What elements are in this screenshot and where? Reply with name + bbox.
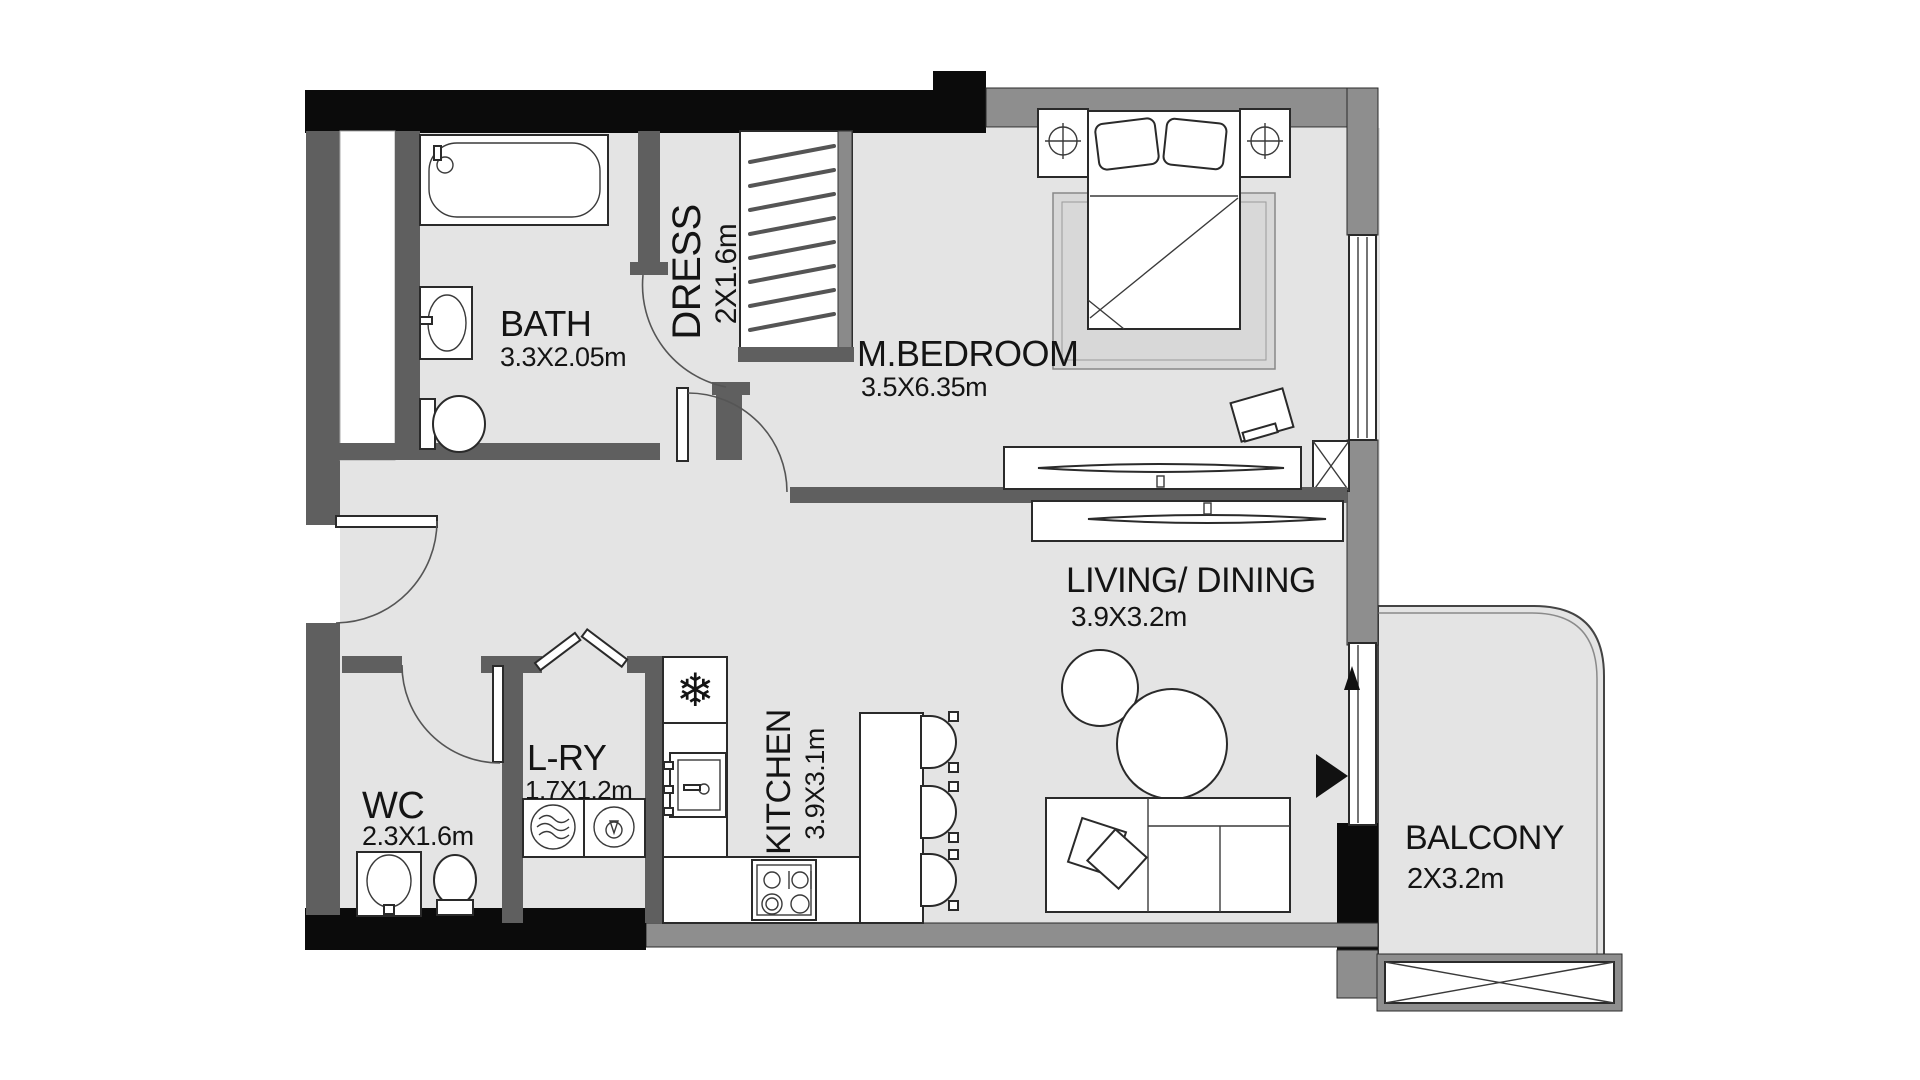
wc-laundry-wall	[502, 656, 523, 923]
bedroom-door-leaf	[677, 388, 688, 461]
label-dress: DRESS 2X1.6m	[665, 204, 743, 339]
bed-pillow	[1163, 118, 1227, 170]
living-tv-icon	[1088, 515, 1326, 523]
balcony-dims: 2X3.2m	[1407, 863, 1504, 895]
bedroom-window	[1349, 235, 1376, 440]
bar-stool-tab	[949, 850, 958, 859]
bottom-wall-gray	[646, 923, 1378, 947]
service-shaft	[340, 131, 395, 460]
bar-stool	[921, 850, 958, 910]
kitchen-sink-knob	[664, 808, 673, 815]
bedroom-tv-icon	[1038, 464, 1284, 472]
bath-name: BATH	[500, 303, 591, 344]
wc-fixtures	[357, 852, 476, 916]
laundry-dims: 1.7X1.2m	[525, 775, 632, 805]
floor-plan-page: ❄	[0, 0, 1920, 1080]
kitchen-dims: 3.9X3.1m	[800, 728, 830, 840]
bath-left-wall	[395, 131, 420, 460]
fridge-snowflake-icon: ❄	[676, 664, 714, 716]
bath-door-jamb	[712, 382, 750, 395]
bath-door-jamb	[630, 262, 668, 275]
breakfast-bar-counter	[860, 713, 923, 923]
wc-toilet-bowl	[434, 855, 476, 905]
laundry-name: L-RY	[527, 737, 607, 778]
bathtub	[420, 135, 608, 225]
wardrobe-bottom-cap	[738, 347, 854, 362]
dress-name: DRESS	[665, 204, 709, 339]
wc-toilet-tank	[437, 900, 473, 915]
dress-dims: 2X1.6m	[710, 224, 743, 324]
floor-plan-svg: ❄	[0, 0, 1920, 1080]
bath-dims: 3.3X2.05m	[500, 342, 626, 372]
master-bedroom-name: M.BEDROOM	[857, 333, 1079, 374]
wardrobe-back-panel	[838, 131, 852, 352]
laundry-jamb-right	[627, 656, 663, 673]
master-bedroom-dims: 3.5X6.35m	[861, 372, 987, 402]
bathtub-tap	[434, 146, 441, 160]
bar-stool	[921, 782, 958, 842]
bed-pillow	[1094, 118, 1159, 171]
entry-door-leaf	[336, 516, 437, 527]
left-wall-lower	[306, 623, 340, 915]
wc-door-leaf	[493, 666, 503, 762]
wc-sink-tap	[384, 905, 394, 914]
laundry-kitchen-wall	[645, 656, 663, 923]
bar-stool-tab	[949, 712, 958, 721]
label-kitchen: KITCHEN 3.9X3.1m	[760, 709, 830, 855]
balcony-side-wall	[1337, 950, 1378, 998]
bar-stool-tab	[949, 833, 958, 842]
wc-dims: 2.3X1.6m	[362, 821, 474, 851]
bath-dress-wall	[638, 131, 660, 272]
kitchen-sink-faucet	[684, 785, 700, 790]
bar-stool-tab	[949, 901, 958, 910]
right-wall-middle	[1347, 440, 1378, 645]
left-wall-upper	[306, 131, 340, 525]
kitchen-sink-knob	[664, 762, 673, 769]
top-wall-step	[933, 71, 986, 96]
bar-stool-tab	[949, 782, 958, 791]
corridor-wall-stub	[716, 395, 742, 460]
top-wall	[305, 90, 986, 133]
dining-table-round-large	[1117, 689, 1227, 799]
dress-wardrobe	[738, 131, 854, 362]
right-wall-upper	[1347, 88, 1378, 235]
kitchen-name: KITCHEN	[760, 709, 798, 855]
laundry-fixtures	[523, 799, 645, 857]
bar-stool-tab	[949, 763, 958, 772]
wc-top-wall	[342, 656, 402, 673]
balcony-name: BALCONY	[1405, 819, 1564, 857]
bar-stool	[921, 712, 958, 772]
bath-bottom-wall	[306, 443, 660, 460]
living-dining-dims: 3.9X3.2m	[1071, 601, 1187, 632]
bath-sink-tap	[420, 317, 432, 324]
balcony-floor	[1378, 606, 1604, 956]
living-dining-name: LIVING/ DINING	[1066, 561, 1316, 600]
bath-toilet-bowl	[433, 396, 485, 452]
kitchen-sink-knob	[664, 786, 673, 793]
